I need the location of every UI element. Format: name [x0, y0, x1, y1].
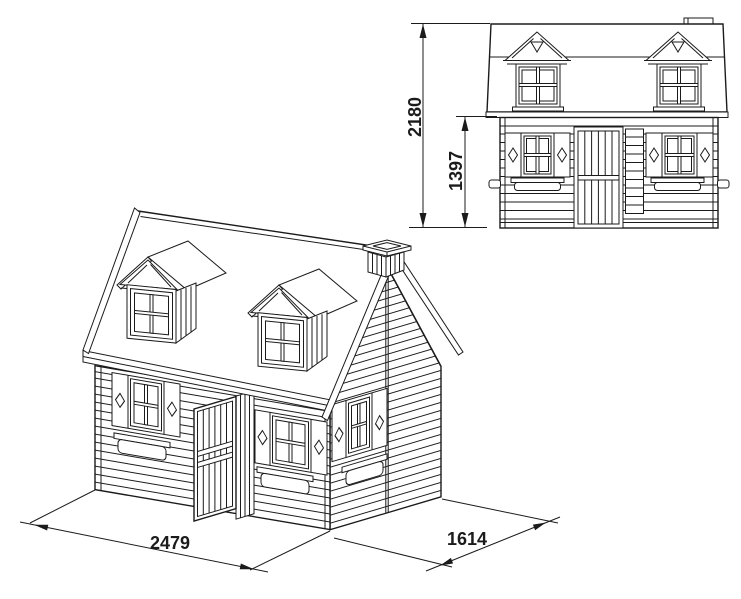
elevation-ladder-strip	[626, 129, 644, 214]
isometric-view: 2479 1614	[20, 208, 560, 572]
dimension-overall-height: 2180	[405, 24, 490, 228]
elevation-fascia	[486, 112, 728, 118]
dimension-eave-height: 1397	[446, 117, 497, 228]
eave-height-label: 1397	[446, 151, 466, 191]
window-box	[511, 178, 564, 183]
playhouse-drawing: 2180 1397	[0, 0, 741, 599]
overall-height-label: 2180	[405, 97, 425, 137]
side-window-box-left	[489, 180, 501, 188]
technical-drawing-page: 2180 1397	[0, 0, 741, 599]
elevation-window-right	[646, 133, 713, 191]
window-box	[651, 178, 704, 183]
front-width-label: 2479	[150, 533, 190, 553]
elevation-door	[574, 127, 623, 228]
side-depth-label: 1614	[447, 529, 487, 549]
elevation-chimney	[684, 18, 713, 24]
iso-door-open	[194, 391, 254, 532]
elevation-window-left	[505, 133, 570, 191]
door-panel	[194, 397, 236, 521]
front-elevation-view: 2180 1397	[405, 18, 729, 228]
side-window-box-right	[718, 180, 730, 188]
